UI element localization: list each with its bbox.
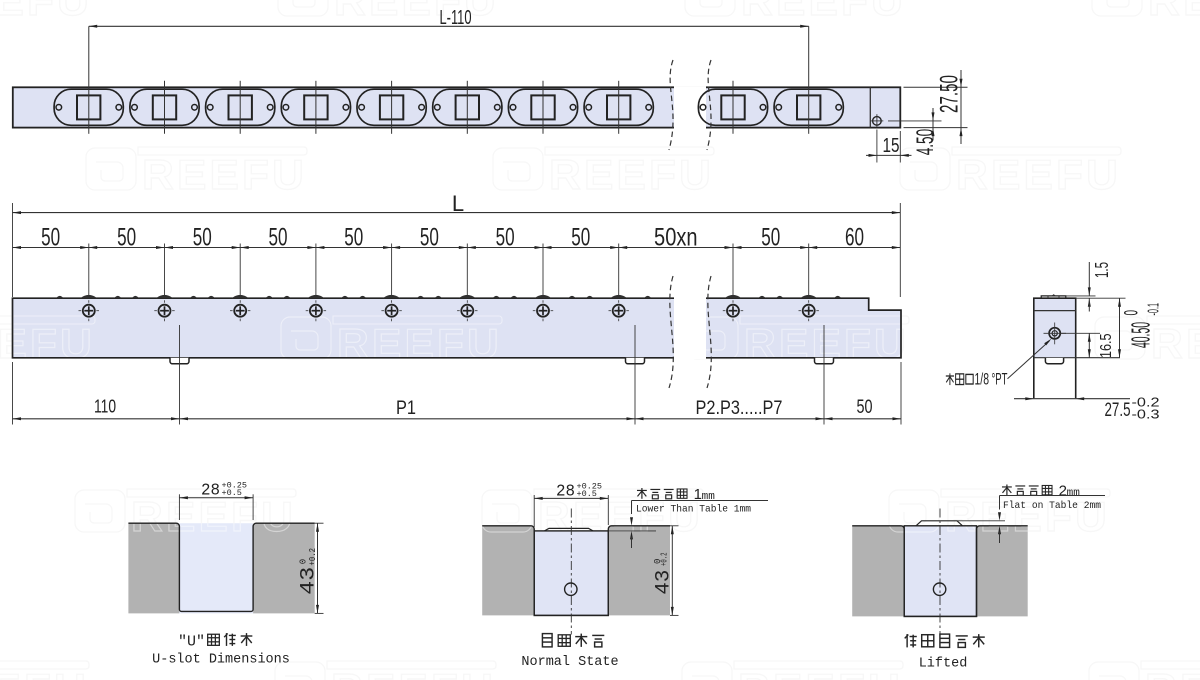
- svg-text:P2.P3.....P7: P2.P3.....P7: [696, 398, 783, 419]
- svg-text:50: 50: [857, 397, 873, 418]
- svg-text:110: 110: [94, 397, 116, 417]
- svg-text:28: 28: [201, 482, 220, 501]
- svg-text:″U″: ″U″: [178, 634, 205, 651]
- svg-text:0: 0: [1122, 310, 1143, 316]
- svg-text:°PT: °PT: [992, 370, 1008, 389]
- svg-text:28: 28: [556, 482, 575, 501]
- svg-text:+0.5: +0.5: [222, 488, 242, 498]
- svg-text:U-slot Dimensions: U-slot Dimensions: [152, 653, 290, 668]
- svg-text:1/8: 1/8: [975, 370, 990, 389]
- svg-text:27.5: 27.5: [1105, 400, 1131, 421]
- svg-text:Normal State: Normal State: [521, 655, 618, 670]
- svg-text:4.50: 4.50: [912, 129, 939, 156]
- svg-text:50: 50: [420, 224, 439, 252]
- svg-text:27.50: 27.50: [936, 75, 964, 113]
- svg-text:mm: mm: [702, 491, 716, 503]
- svg-text:40.50: 40.50: [1126, 322, 1156, 348]
- svg-text:15: 15: [883, 135, 900, 157]
- svg-text:1.5: 1.5: [1092, 262, 1112, 278]
- svg-text:Flat on Table 2mm: Flat on Table 2mm: [1003, 500, 1101, 512]
- svg-text:Lifted: Lifted: [919, 657, 968, 672]
- svg-text:0: 0: [299, 559, 309, 564]
- svg-text:50: 50: [117, 224, 136, 252]
- svg-text:Lower Than Table 1mm: Lower Than Table 1mm: [636, 504, 751, 516]
- svg-text:-0.1: -0.1: [1146, 303, 1163, 316]
- svg-text:50: 50: [496, 224, 515, 252]
- svg-text:43: 43: [653, 570, 676, 595]
- svg-text:16.5: 16.5: [1098, 333, 1115, 358]
- svg-text:L-110: L-110: [440, 7, 472, 29]
- svg-text:mm: mm: [1067, 488, 1081, 500]
- svg-text:50xn: 50xn: [654, 224, 698, 252]
- svg-text:50: 50: [571, 224, 590, 252]
- svg-text:50: 50: [269, 224, 288, 252]
- svg-text:50: 50: [761, 224, 780, 252]
- svg-text:60: 60: [845, 224, 864, 252]
- svg-text:50: 50: [344, 224, 363, 252]
- svg-text:P1: P1: [396, 398, 416, 419]
- svg-text:-0.3: -0.3: [1132, 406, 1160, 421]
- svg-text:+0.2: +0.2: [660, 553, 670, 567]
- svg-text:+0.5: +0.5: [577, 489, 597, 499]
- svg-text:+0.2: +0.2: [308, 548, 318, 566]
- svg-text:L: L: [452, 191, 464, 216]
- svg-text:43: 43: [298, 567, 321, 595]
- svg-text:50: 50: [193, 224, 212, 252]
- svg-text:50: 50: [41, 224, 60, 252]
